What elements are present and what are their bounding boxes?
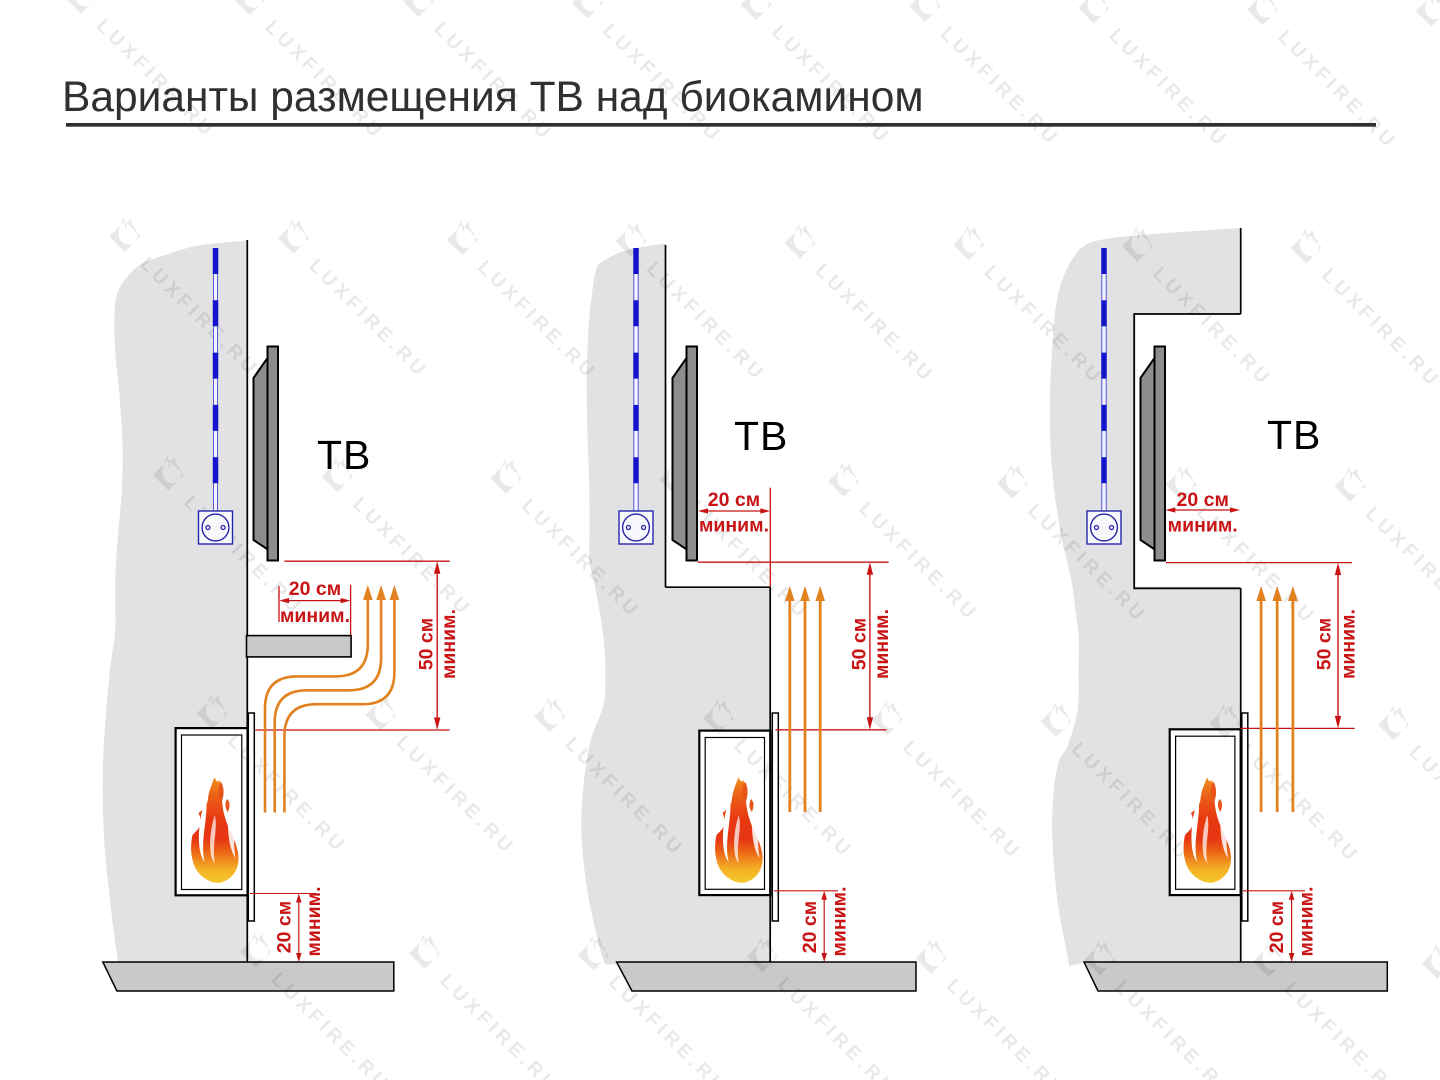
svg-text:миним.: миним.: [280, 605, 350, 627]
svg-text:миним.: миним.: [1338, 609, 1360, 679]
svg-text:миним.: миним.: [1296, 886, 1318, 956]
svg-text:миним.: миним.: [303, 886, 325, 956]
svg-text:20 см: 20 см: [708, 489, 760, 511]
svg-text:миним.: миним.: [871, 609, 893, 679]
svg-text:50 см: 50 см: [848, 618, 870, 670]
svg-text:50 см: 50 см: [416, 618, 438, 670]
svg-text:50 см: 50 см: [1314, 618, 1336, 670]
svg-text:Варианты размещения ТВ над био: Варианты размещения ТВ над биокамином: [62, 74, 924, 121]
svg-text:миним.: миним.: [1168, 515, 1238, 537]
svg-text:миним.: миним.: [438, 609, 460, 679]
svg-text:20 см: 20 см: [799, 901, 821, 953]
svg-text:ТВ: ТВ: [734, 413, 788, 459]
svg-text:миним.: миним.: [699, 515, 769, 537]
svg-text:20 см: 20 см: [1266, 901, 1288, 953]
svg-text:20 см: 20 см: [1177, 489, 1229, 511]
svg-text:ТВ: ТВ: [1267, 412, 1321, 458]
svg-text:20 см: 20 см: [273, 901, 295, 953]
svg-text:ТВ: ТВ: [317, 432, 371, 478]
svg-text:миним.: миним.: [828, 886, 850, 956]
svg-text:20 см: 20 см: [289, 578, 341, 600]
